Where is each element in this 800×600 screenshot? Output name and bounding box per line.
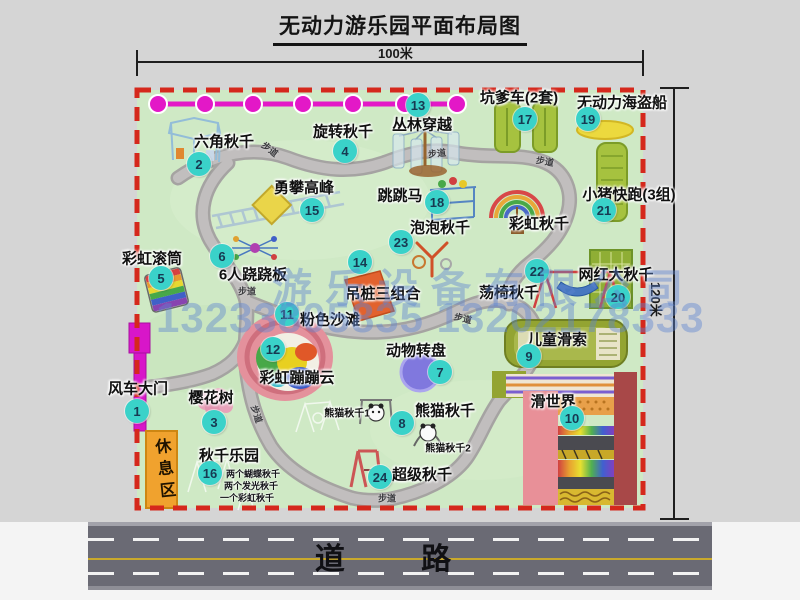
page-title: 无动力游乐园平面布局图 bbox=[273, 10, 527, 46]
label-windmill-gate: 风车大门 bbox=[108, 378, 168, 399]
width-dimension-label: 100米 bbox=[378, 43, 413, 62]
swing-park-note-3: 一个彩虹秋千 bbox=[220, 491, 274, 504]
marker-big-net-swing: 20 bbox=[606, 285, 630, 309]
label-jumping-horse: 跳跳马 bbox=[377, 185, 422, 206]
marker-jungle-crossing: 13 bbox=[406, 93, 430, 117]
height-dimension-label: 120米 bbox=[647, 282, 666, 317]
marker-hanging-piles: 14 bbox=[348, 250, 372, 274]
label-bubble-swing: 泡泡秋千 bbox=[410, 217, 470, 238]
label-pit-car: 坑爹车(2套) bbox=[480, 87, 558, 108]
label-big-net-swing: 网红大秋千 bbox=[578, 264, 653, 285]
marker-hexagon-swing: 2 bbox=[187, 152, 211, 176]
marker-jumping-horse: 18 bbox=[425, 190, 449, 214]
road-bottom-margin bbox=[88, 590, 712, 600]
marker-super-swing: 24 bbox=[368, 465, 392, 489]
label-climbing-peak: 勇攀高峰 bbox=[274, 177, 334, 198]
label-rainbow-roller: 彩虹滚筒 bbox=[122, 248, 182, 269]
road-label: 道 路 bbox=[315, 534, 485, 578]
road-curb-bottom bbox=[88, 586, 712, 590]
walkway-label: 步道 bbox=[427, 146, 446, 161]
road-left-margin bbox=[0, 522, 88, 600]
marker-six-person-seesaw: 6 bbox=[210, 244, 234, 268]
marker-rainbow-bounce-cloud: 12 bbox=[261, 337, 285, 361]
label-swing-chair: 荡椅秋千 bbox=[479, 282, 539, 303]
label-panda-swing-1: 熊猫秋千1 bbox=[324, 405, 370, 420]
label-six-person-seesaw: 6人跷跷板 bbox=[219, 264, 287, 285]
marker-piggy-run: 21 bbox=[592, 198, 616, 222]
marker-swing-chair: 22 bbox=[525, 259, 549, 283]
label-jungle-crossing: 丛林穿越 bbox=[392, 114, 452, 135]
road-right-margin bbox=[712, 522, 800, 600]
marker-swing-park: 16 bbox=[198, 461, 222, 485]
marker-cherry-blossom-tree: 3 bbox=[202, 410, 226, 434]
marker-pink-beach: 11 bbox=[275, 302, 299, 326]
park-layout-map: 无动力游乐园平面布局图 100米 120米 游乐设备有限公司 132338058… bbox=[0, 0, 800, 600]
label-hanging-piles: 吊桩三组合 bbox=[345, 283, 420, 304]
marker-bubble-swing: 23 bbox=[389, 230, 413, 254]
road-curb-top bbox=[88, 522, 712, 526]
label-super-swing: 超级秋千 bbox=[392, 464, 452, 485]
marker-rotating-swing: 4 bbox=[333, 139, 357, 163]
marker-windmill-gate: 1 bbox=[125, 399, 149, 423]
label-animal-carousel: 动物转盘 bbox=[386, 340, 446, 361]
walkway-label: 步道 bbox=[238, 285, 256, 298]
marker-panda-swing: 8 bbox=[390, 411, 414, 435]
marker-pirate-ship: 19 bbox=[576, 107, 600, 131]
marker-climbing-peak: 15 bbox=[300, 198, 324, 222]
label-rainbow-bounce-cloud: 彩虹蹦蹦云 bbox=[259, 367, 334, 388]
label-hexagon-swing: 六角秋千 bbox=[194, 131, 254, 152]
label-panda-swing: 熊猫秋千 bbox=[415, 400, 475, 421]
label-cherry-blossom-tree: 樱花树 bbox=[188, 387, 233, 408]
marker-kids-zipline: 9 bbox=[517, 344, 541, 368]
label-panda-swing-2: 熊猫秋千2 bbox=[425, 440, 471, 455]
label-rainbow-swing: 彩虹秋千 bbox=[509, 213, 569, 234]
label-pink-beach: 粉色沙滩 bbox=[300, 309, 360, 330]
walkway-label: 步道 bbox=[378, 492, 396, 505]
marker-pit-car: 17 bbox=[513, 107, 537, 131]
marker-rainbow-roller: 5 bbox=[149, 266, 173, 290]
marker-animal-carousel: 7 bbox=[428, 360, 452, 384]
marker-slide-world: 10 bbox=[560, 406, 584, 430]
